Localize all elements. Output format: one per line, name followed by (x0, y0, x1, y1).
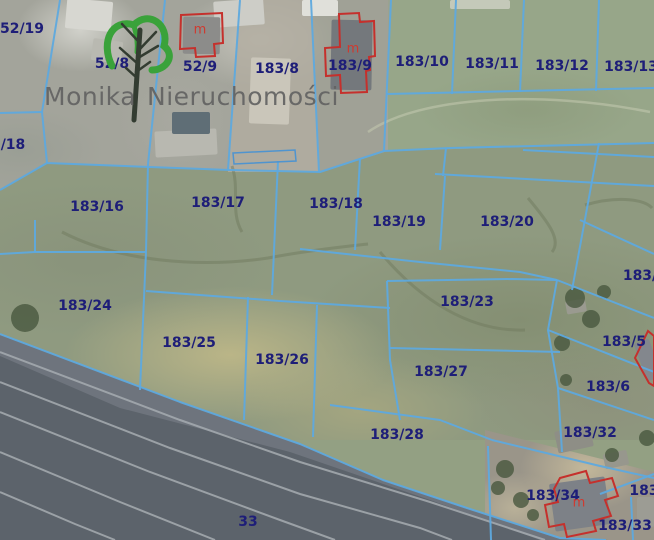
parcel-boundary-line (580, 220, 654, 254)
tree-canopy (560, 374, 572, 386)
tree-canopy (639, 430, 654, 446)
terrain-patch (65, 0, 113, 32)
tree-canopy (11, 304, 39, 332)
parcel-boundary-line (548, 280, 562, 452)
tree-canopy (527, 509, 539, 521)
parcel-boundary-line (558, 388, 654, 420)
parcel-boundary-line (244, 297, 248, 420)
terrain-patch (302, 0, 338, 16)
parcel-boundary-line (42, 0, 60, 112)
parcel-boundary-line (452, 0, 456, 94)
parcel-boundary-line (140, 164, 148, 390)
parcel-boundary-line (387, 279, 557, 281)
parcel-boundary-line (596, 0, 599, 91)
parcel-boundary-line (0, 112, 42, 113)
field-track (528, 198, 555, 252)
parcel-boundary-line (572, 143, 599, 290)
tree-canopy (605, 448, 619, 462)
parcel-boundary-line (272, 161, 278, 295)
tree-canopy (582, 310, 600, 328)
parcel-boundary-line (440, 176, 445, 250)
tree-canopy (496, 460, 514, 478)
railway-corridor (0, 334, 608, 540)
parcel-boundary-line (390, 348, 560, 352)
terrain-patch (172, 112, 210, 134)
parcel-boundary-line (600, 474, 654, 494)
parcel-boundary-line (330, 405, 492, 440)
terrain-patch (91, 38, 124, 64)
parcel-boundary-line (146, 291, 390, 308)
parcel-boundary-line (384, 143, 654, 151)
parcel-boundary-line (523, 150, 654, 157)
field-track (380, 252, 525, 330)
parcel-boundary-line (520, 0, 524, 92)
cadastral-overlay (0, 0, 654, 540)
tree-canopy (513, 492, 529, 508)
parcel-boundary-line (300, 249, 557, 280)
terrain-patch (637, 497, 654, 527)
terrain-patch (549, 476, 611, 531)
terrain-patch (450, 0, 510, 9)
tree-canopy (565, 288, 585, 308)
cadastral-map-image[interactable]: 52/1952/852/9183/8183/9183/10183/11183/1… (0, 0, 654, 540)
field-track (585, 199, 652, 208)
tree-canopy (491, 481, 505, 495)
field-track (62, 232, 368, 262)
terrain-patch (249, 57, 291, 124)
parcel-boundary-line (435, 174, 654, 186)
parcel-boundary-line (42, 112, 47, 163)
parcel-boundary-line (443, 148, 446, 176)
parcel-boundary-line (313, 305, 317, 437)
parcel-boundary-line (355, 158, 360, 250)
parcel-boundary-line (631, 497, 633, 540)
parcel-boundary-line (387, 281, 400, 420)
field-track-light (368, 99, 650, 132)
field-track (232, 166, 242, 232)
